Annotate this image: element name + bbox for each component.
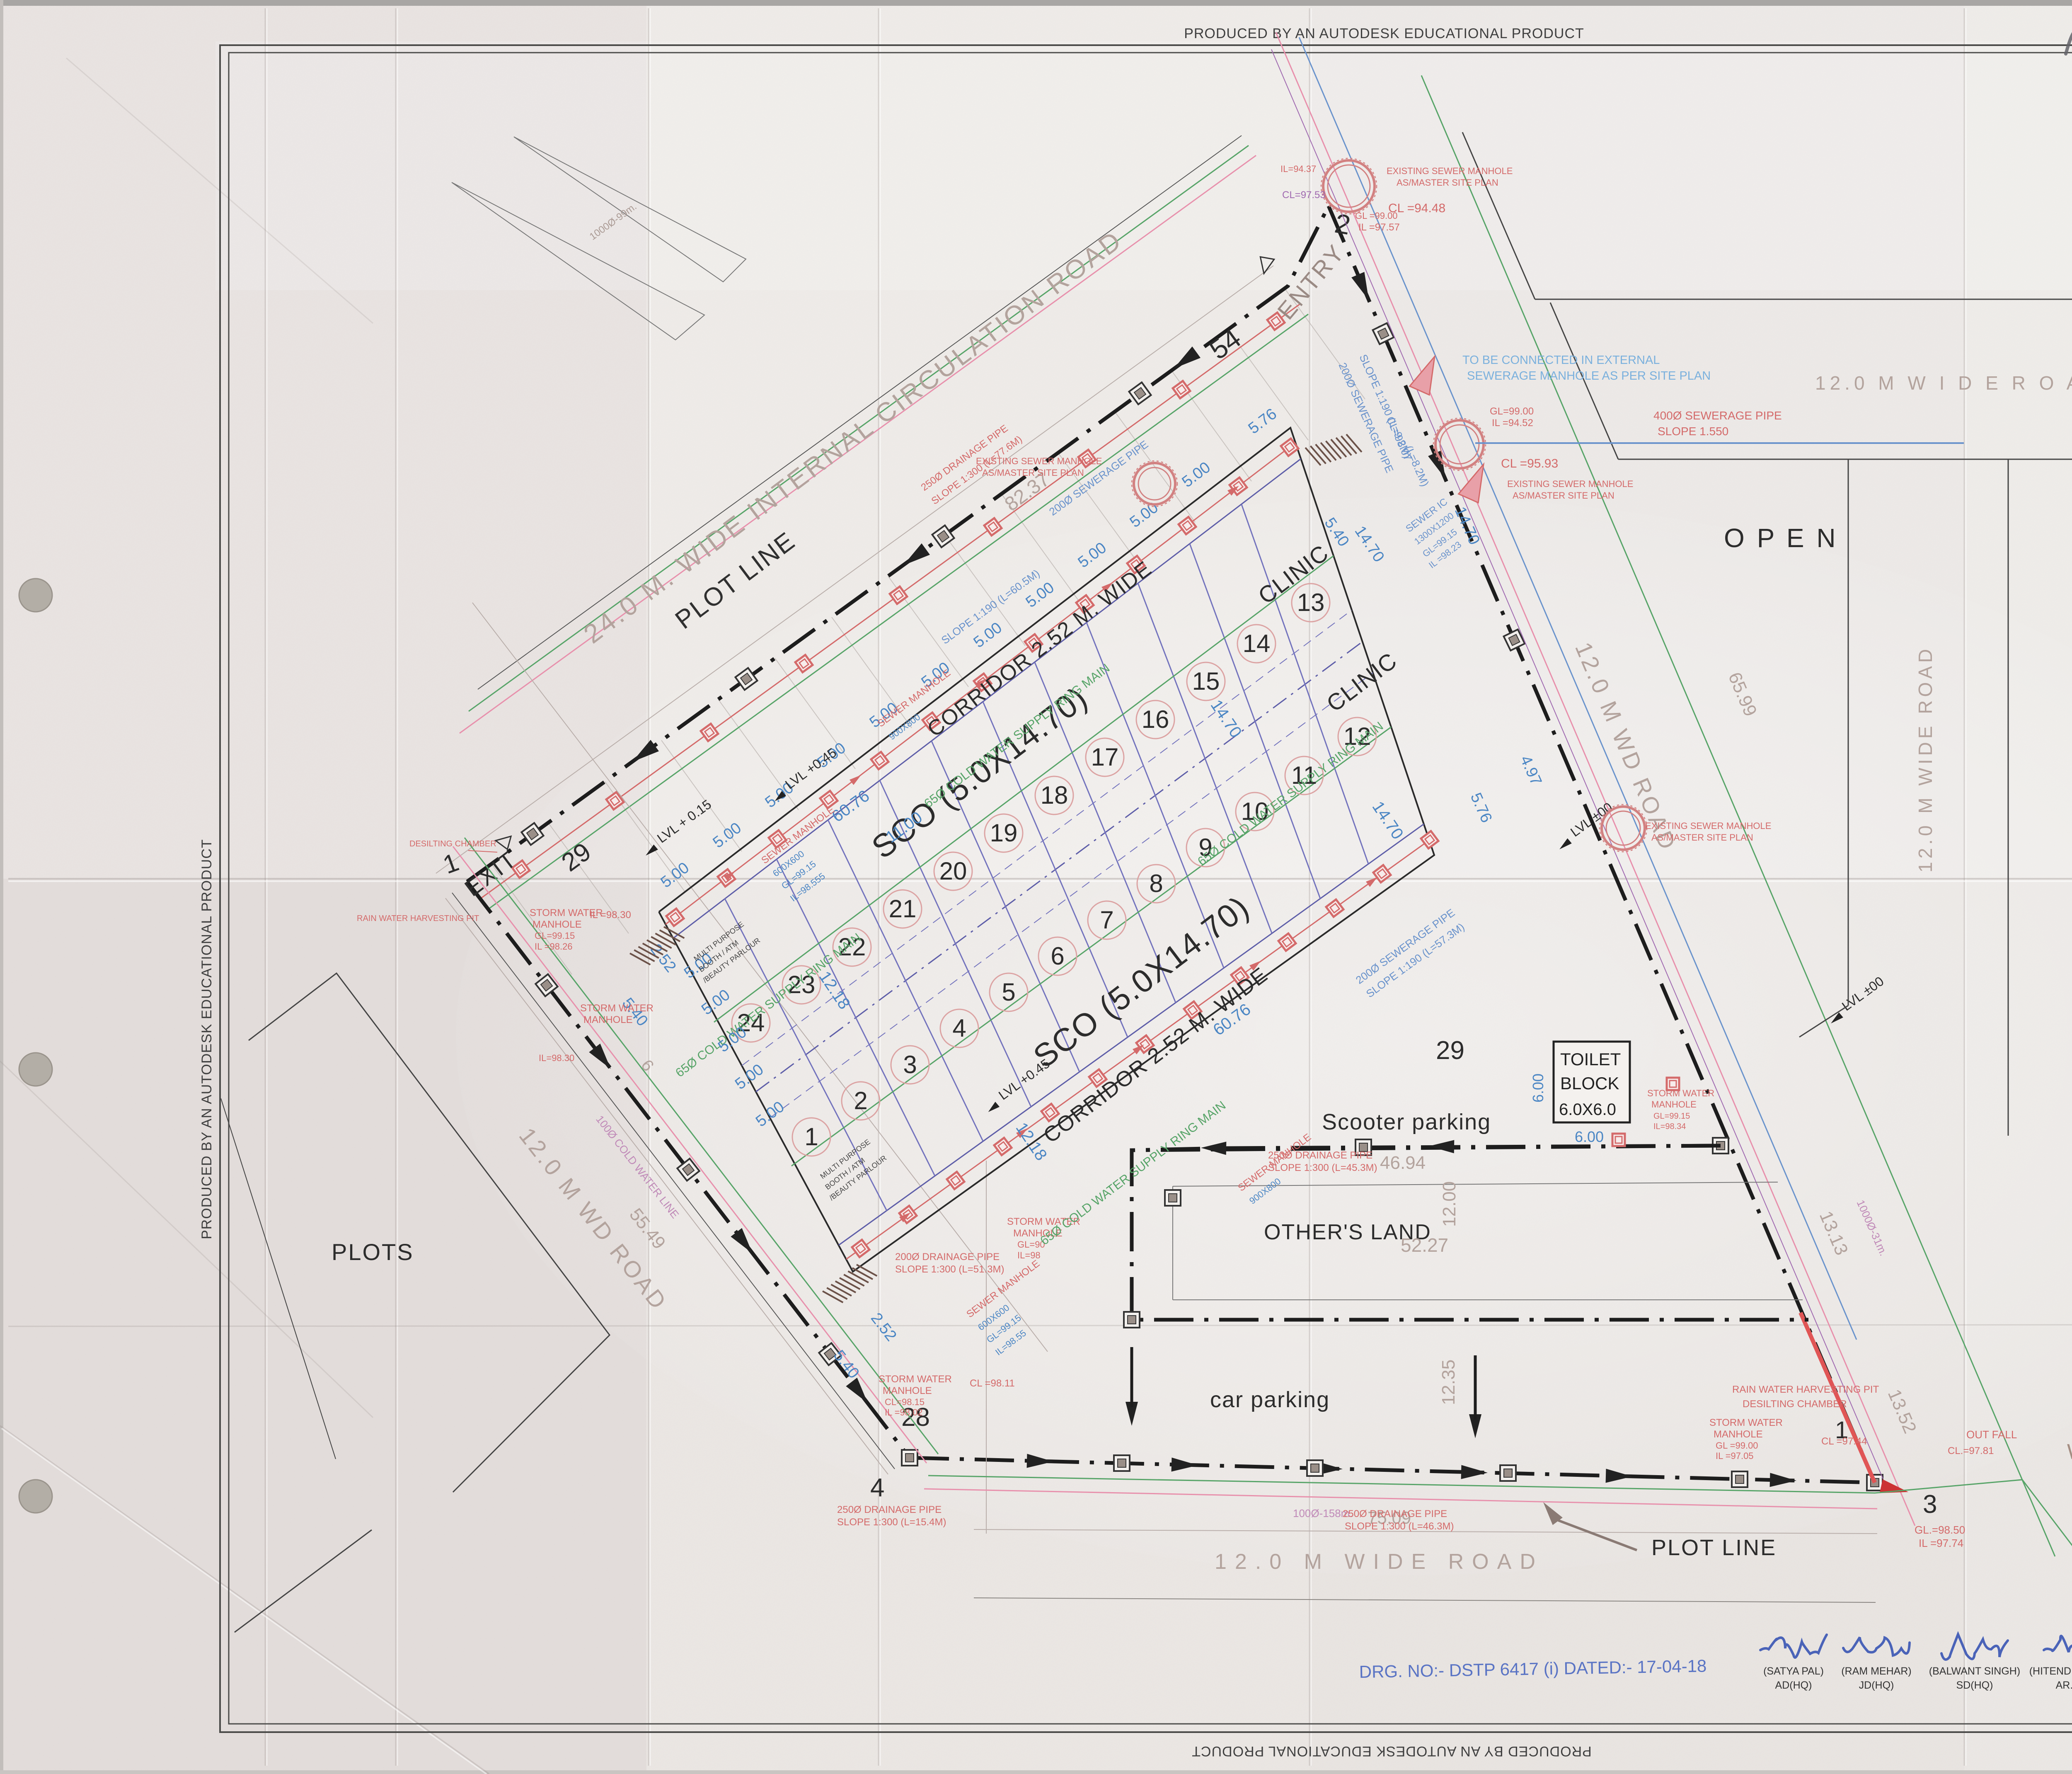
svg-text:20: 20 [939, 857, 967, 885]
svg-text:PRODUCED BY AN AUTODESK EDUCAT: PRODUCED BY AN AUTODESK EDUCATIONAL PROD… [1184, 26, 1584, 41]
svg-text:CL =97.44: CL =97.44 [1821, 1436, 1867, 1447]
svg-text:16: 16 [1142, 705, 1169, 733]
svg-text:IL =97.05: IL =97.05 [1716, 1451, 1754, 1461]
svg-text:PLOTS: PLOTS [332, 1239, 414, 1265]
svg-text:IL=98.30: IL=98.30 [539, 1053, 574, 1063]
svg-text:1: 1 [804, 1123, 818, 1151]
svg-text:CL =95.93: CL =95.93 [1501, 457, 1558, 470]
svg-text:RAIN WATER HARVESTING PIT: RAIN WATER HARVESTING PIT [1732, 1384, 1879, 1395]
svg-text:DESILTING CHAMBER: DESILTING CHAMBER [1743, 1398, 1847, 1410]
svg-text:AS/MASTER SITE PLAN: AS/MASTER SITE PLAN [1513, 490, 1615, 501]
svg-text:12.00: 12.00 [1439, 1181, 1460, 1227]
svg-text:MANHOLE: MANHOLE [883, 1385, 932, 1396]
svg-text:12.0 M WIDE ROAD: 12.0 M WIDE ROAD [1915, 646, 1936, 872]
svg-text:TO BE CONNECTED IN EXTERNAL: TO BE CONNECTED IN EXTERNAL [1462, 354, 1660, 367]
svg-text:EXISTING SEWER MANHOLE: EXISTING SEWER MANHOLE [1387, 166, 1513, 176]
svg-text:250Ø DRAINAGE PIPE: 250Ø DRAINAGE PIPE [837, 1504, 942, 1515]
svg-text:12.35: 12.35 [1438, 1360, 1459, 1405]
svg-text:250Ø DRAINAGE PIPE: 250Ø DRAINAGE PIPE [1343, 1508, 1447, 1520]
svg-text:W: W [2067, 1440, 2072, 1464]
svg-text:GL =99.00: GL =99.00 [1716, 1440, 1758, 1451]
svg-text:6.00: 6.00 [1575, 1128, 1604, 1145]
svg-text:6: 6 [1051, 942, 1064, 970]
svg-text:18: 18 [1041, 781, 1068, 809]
svg-text:MANHOLE: MANHOLE [533, 919, 582, 930]
svg-text:TOILET: TOILET [1560, 1049, 1621, 1069]
svg-text:AS/MASTER SITE PLAN: AS/MASTER SITE PLAN [982, 468, 1084, 478]
svg-text:IL =94.52: IL =94.52 [1492, 417, 1533, 429]
svg-text:29: 29 [1436, 1036, 1464, 1065]
svg-text:MANHOLE: MANHOLE [583, 1014, 633, 1025]
svg-text:400Ø SEWERAGE PIPE: 400Ø SEWERAGE PIPE [1653, 409, 1782, 422]
svg-text:EXISTING SEWER MANHOLE: EXISTING SEWER MANHOLE [976, 456, 1102, 466]
svg-text:MANHOLE: MANHOLE [1714, 1429, 1763, 1440]
svg-text:STORM WATER: STORM WATER [580, 1003, 654, 1014]
svg-text:GL=99.15: GL=99.15 [535, 931, 575, 941]
svg-text:O P E N: O P E N [1724, 523, 1838, 553]
svg-text:21: 21 [889, 895, 917, 923]
svg-text:(HITENDER SINGH): (HITENDER SINGH) [2029, 1665, 2072, 1677]
svg-text:3: 3 [1923, 1490, 1937, 1519]
svg-text:IL =98.30: IL =98.30 [590, 909, 631, 921]
svg-text:SLOPE 1:300 (L=45.3M): SLOPE 1:300 (L=45.3M) [1268, 1162, 1377, 1173]
svg-text:46.94: 46.94 [1380, 1153, 1426, 1173]
svg-text:17: 17 [1091, 743, 1119, 771]
svg-text:GL=99.15: GL=99.15 [1653, 1112, 1690, 1121]
svg-text:STORM WATER: STORM WATER [879, 1374, 952, 1385]
svg-text:EXISTING SEWER MANHOLE: EXISTING SEWER MANHOLE [1507, 479, 1633, 489]
svg-text:2: 2 [854, 1087, 867, 1115]
svg-text:6.0X6.0: 6.0X6.0 [1559, 1100, 1616, 1119]
svg-text:CL =98.11: CL =98.11 [970, 1378, 1015, 1389]
svg-text:IL =98.26: IL =98.26 [535, 941, 573, 952]
svg-text:IL=98: IL=98 [1017, 1250, 1041, 1260]
svg-text:4: 4 [870, 1473, 884, 1502]
svg-text:19: 19 [990, 819, 1018, 847]
svg-text:DESILTING CHAMBER: DESILTING CHAMBER [409, 839, 496, 848]
svg-text:12.0 M W I D E R O A D: 12.0 M W I D E R O A D [1815, 372, 2072, 394]
svg-text:14: 14 [1243, 630, 1271, 657]
svg-text:Scooter parking: Scooter parking [1322, 1110, 1491, 1134]
svg-text:SLOPE 1:300 (L=46.3M): SLOPE 1:300 (L=46.3M) [1345, 1521, 1454, 1532]
svg-text:IL =97.57: IL =97.57 [1358, 222, 1400, 233]
svg-text:SEWERAGE MANHOLE AS PER SITE P: SEWERAGE MANHOLE AS PER SITE PLAN [1467, 369, 1711, 383]
svg-text:15: 15 [1192, 667, 1220, 695]
svg-text:IL =98.02: IL =98.02 [885, 1407, 923, 1418]
svg-text:(SATYA PAL): (SATYA PAL) [1763, 1665, 1824, 1677]
svg-text:IL =97.74: IL =97.74 [1919, 1537, 1963, 1549]
svg-text:13: 13 [1297, 589, 1325, 616]
svg-text:GL =99.00: GL =99.00 [1355, 211, 1398, 221]
svg-text:200Ø DRAINAGE PIPE: 200Ø DRAINAGE PIPE [895, 1251, 1000, 1263]
svg-text:IL=98.34: IL=98.34 [1653, 1122, 1686, 1131]
svg-text:GL.=98.50: GL.=98.50 [1915, 1524, 1965, 1536]
svg-text:IL=94.37: IL=94.37 [1280, 164, 1316, 174]
svg-text:PLOT LINE: PLOT LINE [1651, 1535, 1777, 1560]
svg-text:BLOCK: BLOCK [1560, 1074, 1619, 1093]
svg-text:CL=98.15: CL=98.15 [885, 1397, 925, 1407]
svg-text:CL=97.53: CL=97.53 [1282, 189, 1326, 201]
svg-text:3: 3 [903, 1051, 917, 1078]
svg-text:OUT FALL: OUT FALL [1966, 1428, 2017, 1441]
svg-text:STORM WATER: STORM WATER [1709, 1417, 1783, 1428]
svg-text:AD(HQ): AD(HQ) [1775, 1679, 1812, 1691]
svg-text:5: 5 [1002, 978, 1015, 1006]
svg-text:PRODUCED BY AN AUTODESK EDUCAT: PRODUCED BY AN AUTODESK EDUCATIONAL PROD… [199, 839, 215, 1239]
svg-text:JD(HQ): JD(HQ) [1859, 1679, 1894, 1691]
svg-text:SLOPE 1:300 (L=15.4M): SLOPE 1:300 (L=15.4M) [837, 1517, 946, 1528]
svg-text:GL=99.00: GL=99.00 [1490, 406, 1534, 417]
svg-text:AS/MASTER SITE PLAN: AS/MASTER SITE PLAN [1651, 832, 1753, 843]
svg-text:PRODUCED BY AN AUTODESK EDUCAT: PRODUCED BY AN AUTODESK EDUCATIONAL PROD… [1191, 1743, 1592, 1759]
svg-text:CL.=97.81: CL.=97.81 [1948, 1445, 1994, 1457]
svg-text:52.27: 52.27 [1401, 1234, 1448, 1256]
svg-text:4: 4 [952, 1014, 966, 1042]
svg-text:6.00: 6.00 [1530, 1074, 1547, 1103]
svg-text:(BALWANT SINGH): (BALWANT SINGH) [1929, 1665, 2020, 1677]
svg-text:SLOPE 1.550: SLOPE 1.550 [1658, 425, 1728, 438]
svg-text:(RAM MEHAR): (RAM MEHAR) [1841, 1665, 1911, 1677]
svg-text:AR.(HQ.): AR.(HQ.) [2056, 1679, 2072, 1691]
svg-text:STORM WATER: STORM WATER [1647, 1088, 1714, 1098]
svg-text:SD(HQ): SD(HQ) [1956, 1679, 1993, 1691]
svg-text:8: 8 [1149, 870, 1163, 897]
svg-text:AS/MASTER SITE PLAN: AS/MASTER SITE PLAN [1397, 177, 1498, 188]
svg-text:12.0 M WIDE ROAD: 12.0 M WIDE ROAD [1215, 1550, 1544, 1574]
svg-text:7: 7 [1100, 906, 1113, 934]
svg-text:MANHOLE: MANHOLE [1651, 1099, 1697, 1110]
svg-text:RAIN WATER HARVESTING PIT: RAIN WATER HARVESTING PIT [357, 914, 479, 923]
svg-text:EXISTING SEWER MANHOLE: EXISTING SEWER MANHOLE [1645, 821, 1771, 831]
svg-text:car parking: car parking [1210, 1387, 1330, 1412]
svg-text:SLOPE 1:300 (L=51.3M): SLOPE 1:300 (L=51.3M) [895, 1264, 1004, 1275]
